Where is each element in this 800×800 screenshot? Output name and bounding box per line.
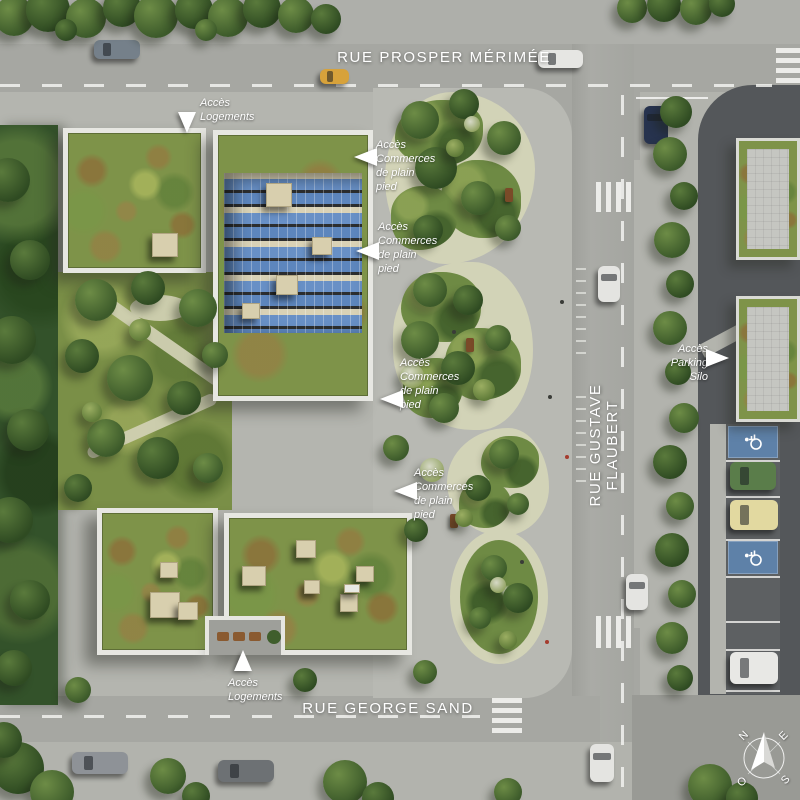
pedestrian <box>520 560 524 564</box>
roof-skylight <box>344 584 360 593</box>
building-south-left-wing <box>97 508 218 655</box>
car-yellow <box>320 69 349 84</box>
street-label-prosper-merimee: RUE PROSPER MÉRIMÉE <box>324 49 564 66</box>
label-acces-logements-bottom: Accès Logements <box>228 676 304 704</box>
building-main-solar-roof <box>213 130 373 401</box>
bike-racks <box>576 396 586 492</box>
cyclist <box>545 640 549 644</box>
disabled-parking-stall <box>728 426 778 458</box>
label-acces-logements-top: Accès Logements <box>200 96 280 124</box>
crosswalk-northeast <box>776 48 800 88</box>
car-white <box>598 266 620 302</box>
car-green <box>730 462 776 490</box>
car-white <box>590 744 614 782</box>
wheelchair-icon <box>743 548 763 568</box>
roof-access-box <box>356 566 374 582</box>
compass-rose: N E S O <box>732 720 796 792</box>
roof-access-box <box>178 602 198 620</box>
roof-access-box <box>160 562 178 578</box>
bike-racks <box>576 268 586 356</box>
parking-silo-building <box>736 138 800 260</box>
building-northwest-green-roof <box>63 128 206 273</box>
parking-silo-building <box>736 296 800 422</box>
car-white <box>626 574 648 610</box>
plaza-island <box>450 530 548 664</box>
car-dark <box>218 760 274 782</box>
car-navy <box>644 106 668 144</box>
label-acces-commerces-2: Accès Commerces de plain pied <box>378 220 450 276</box>
wheelchair-icon <box>743 432 763 452</box>
car-gray <box>72 752 128 774</box>
roof-access-box <box>152 233 178 257</box>
arrow-up-icon <box>234 650 252 671</box>
arrow-left-icon <box>380 390 403 408</box>
cyclist <box>565 455 569 459</box>
street-label-gustave-flaubert: RUE GUSTAVE FLAUBERT <box>587 345 621 545</box>
label-acces-commerces-4: Accès Commerces de plain pied <box>414 466 486 522</box>
crosswalk-flaubert-south <box>596 616 632 648</box>
label-acces-parking-silo: Accès Parking Silo <box>652 342 708 384</box>
disabled-parking-stall <box>728 541 778 574</box>
arrow-left-icon <box>356 242 379 260</box>
label-acces-commerces-3: Accès Commerces de plain pied <box>400 356 472 412</box>
arrow-right-icon <box>706 349 729 367</box>
label-acces-commerces-1: Accès Commerces de plain pied <box>376 138 448 194</box>
parking-sidewalk <box>710 424 726 694</box>
car <box>94 40 140 59</box>
roof-access-box <box>276 275 298 295</box>
west-hedge <box>0 125 58 705</box>
center-line-top <box>0 84 772 87</box>
crosswalk-flaubert-north <box>596 182 632 212</box>
garden-clearing <box>130 295 190 321</box>
roof-access-box <box>296 540 316 558</box>
parking-bay-line <box>636 97 708 99</box>
roof-access-box <box>242 566 266 586</box>
pedestrian <box>452 330 456 334</box>
roof-access-box <box>340 594 358 612</box>
arrow-left-icon <box>354 148 377 166</box>
car-cream <box>730 500 778 530</box>
car-white <box>730 652 778 684</box>
pedestrian <box>560 300 564 304</box>
roof-access-box <box>242 303 260 319</box>
bench <box>505 188 513 202</box>
architectural-site-plan: RUE PROSPER MÉRIMÉE RUE GUSTAVE FLAUBERT… <box>0 0 800 800</box>
roof-access-box <box>304 580 320 594</box>
arrow-left-icon <box>394 482 417 500</box>
pedestrian <box>548 395 552 399</box>
arrow-down-icon <box>178 112 196 133</box>
north-sidewalk <box>0 0 800 44</box>
roof-access-box <box>150 592 180 618</box>
roof-access-box <box>312 237 332 255</box>
street-label-george-sand: RUE GEORGE SAND <box>278 700 498 717</box>
roof-access-box <box>266 183 292 207</box>
bench <box>466 338 474 352</box>
